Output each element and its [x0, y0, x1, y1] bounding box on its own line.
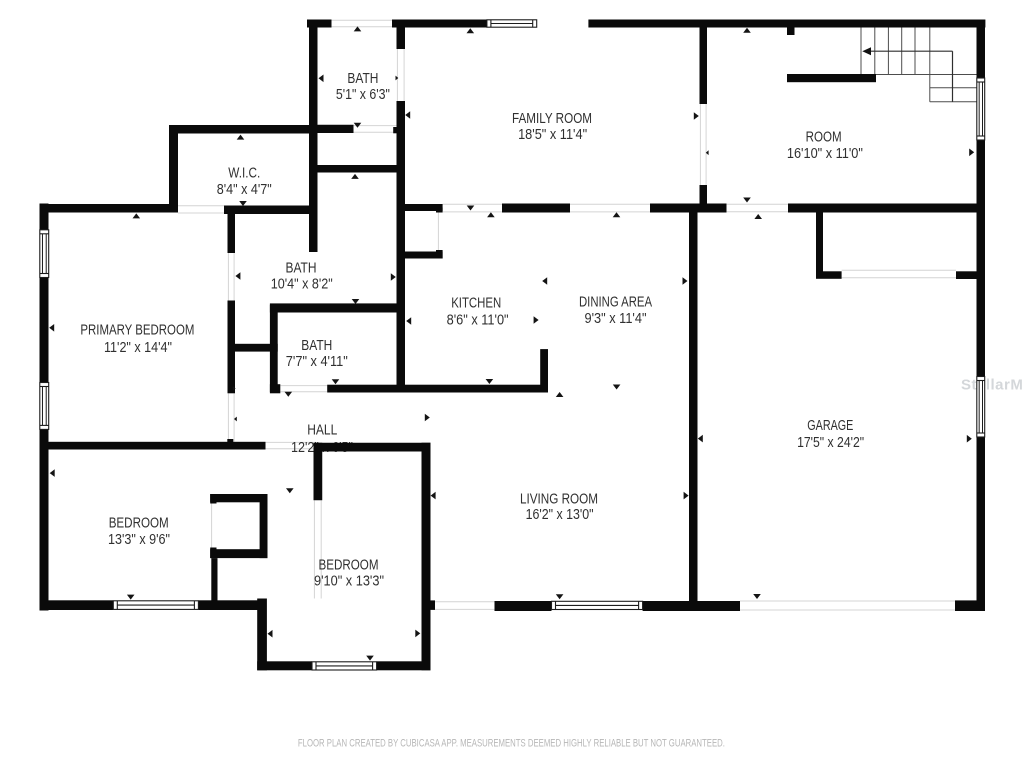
svg-text:BATH: BATH — [301, 338, 332, 354]
svg-text:DINING AREA: DINING AREA — [579, 294, 652, 310]
svg-text:HALL: HALL — [307, 422, 337, 438]
svg-text:KITCHEN: KITCHEN — [451, 296, 501, 312]
svg-text:BEDROOM: BEDROOM — [319, 557, 379, 573]
svg-text:9'10" x 13'3": 9'10" x 13'3" — [314, 574, 384, 590]
svg-text:FLOOR PLAN CREATED BY CUBICASA: FLOOR PLAN CREATED BY CUBICASA APP. MEAS… — [298, 737, 725, 749]
svg-text:BEDROOM: BEDROOM — [109, 515, 169, 531]
svg-text:8'4" x 4'7": 8'4" x 4'7" — [217, 182, 272, 198]
svg-text:10'4" x 8'2": 10'4" x 8'2" — [271, 277, 333, 293]
svg-text:LIVING ROOM: LIVING ROOM — [520, 492, 598, 508]
svg-text:BATH: BATH — [347, 71, 378, 87]
svg-text:5'1" x 6'3": 5'1" x 6'3" — [336, 87, 390, 103]
svg-text:StellarMLS: StellarMLS — [961, 377, 1024, 394]
svg-text:W.I.C.: W.I.C. — [228, 166, 260, 182]
svg-text:16'2" x 13'0": 16'2" x 13'0" — [526, 507, 594, 523]
svg-text:18'5" x 11'4": 18'5" x 11'4" — [518, 127, 587, 143]
svg-text:PRIMARY BEDROOM: PRIMARY BEDROOM — [80, 323, 194, 339]
svg-text:7'7" x 4'11": 7'7" x 4'11" — [286, 354, 348, 370]
svg-text:9'3" x 11'4": 9'3" x 11'4" — [585, 311, 647, 327]
svg-text:11'2" x 14'4": 11'2" x 14'4" — [104, 340, 172, 356]
svg-text:GARAGE: GARAGE — [807, 418, 853, 434]
svg-text:8'6" x 11'0": 8'6" x 11'0" — [447, 312, 509, 328]
svg-text:BATH: BATH — [286, 260, 317, 276]
svg-text:17'5" x 24'2": 17'5" x 24'2" — [797, 435, 864, 451]
svg-text:ROOM: ROOM — [806, 130, 842, 146]
svg-text:FAMILY ROOM: FAMILY ROOM — [512, 111, 592, 127]
svg-text:16'10" x 11'0": 16'10" x 11'0" — [787, 146, 863, 162]
svg-text:13'3" x 9'6": 13'3" x 9'6" — [108, 532, 170, 548]
